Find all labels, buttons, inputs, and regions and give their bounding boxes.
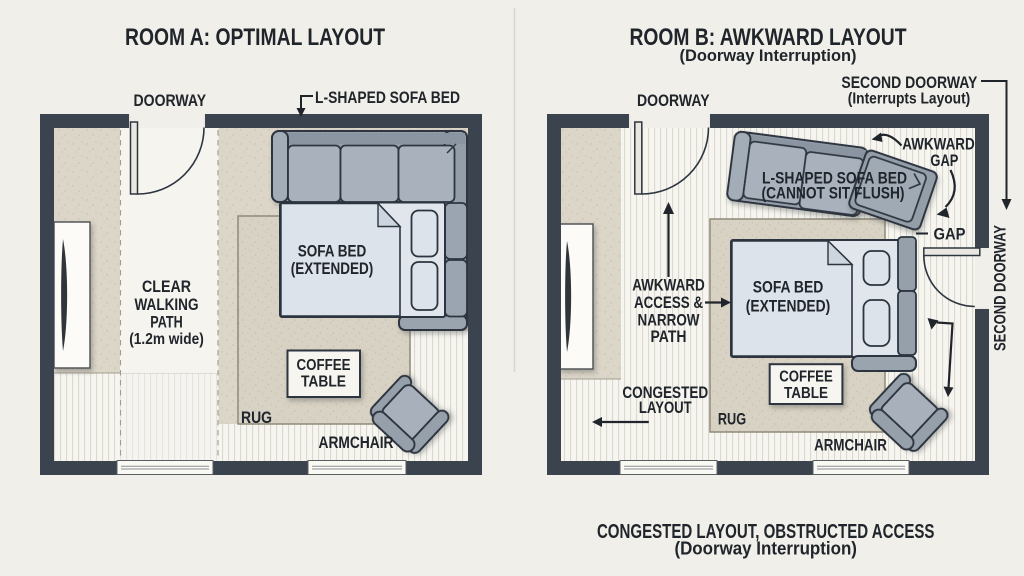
svg-text:SOFA BED: SOFA BED <box>753 279 824 297</box>
svg-text:AWKWARD: AWKWARD <box>632 276 705 295</box>
svg-text:RUG: RUG <box>718 410 746 429</box>
svg-text:(EXTENDED): (EXTENDED) <box>291 260 374 278</box>
svg-text:(Doorway Interruption): (Doorway Interruption) <box>680 46 857 65</box>
svg-text:COFFEE: COFFEE <box>779 369 833 386</box>
svg-text:SOFA BED: SOFA BED <box>298 243 367 261</box>
svg-text:PATH: PATH <box>150 313 183 332</box>
svg-text:ROOM A: OPTIMAL LAYOUT: ROOM A: OPTIMAL LAYOUT <box>125 24 385 51</box>
svg-text:ARMCHAIR: ARMCHAIR <box>319 433 394 452</box>
svg-text:L-SHAPED SOFA BED: L-SHAPED SOFA BED <box>315 88 460 107</box>
svg-text:COFFEE: COFFEE <box>297 357 351 374</box>
svg-text:SECOND DOORWAY: SECOND DOORWAY <box>991 224 1010 351</box>
svg-text:ACCESS &: ACCESS & <box>634 293 703 312</box>
svg-text:CLEAR: CLEAR <box>142 277 191 296</box>
svg-text:RUG: RUG <box>241 408 272 427</box>
svg-text:LAYOUT: LAYOUT <box>639 398 692 417</box>
svg-text:(Doorway Interruption): (Doorway Interruption) <box>674 539 857 559</box>
svg-text:GAP: GAP <box>930 151 958 170</box>
svg-text:TABLE: TABLE <box>301 374 346 391</box>
svg-text:TABLE: TABLE <box>784 385 828 402</box>
svg-text:(EXTENDED): (EXTENDED) <box>746 298 831 316</box>
svg-text:(CANNOT SIT FLUSH): (CANNOT SIT FLUSH) <box>762 184 905 203</box>
svg-text:WALKING: WALKING <box>135 295 199 314</box>
svg-text:(1.2m wide): (1.2m wide) <box>129 331 204 348</box>
svg-text:GAP: GAP <box>934 225 966 244</box>
svg-text:DOORWAY: DOORWAY <box>637 91 710 110</box>
svg-text:(Interrupts Layout): (Interrupts Layout) <box>848 91 971 108</box>
svg-text:SECOND DOORWAY: SECOND DOORWAY <box>841 73 978 92</box>
svg-text:PATH: PATH <box>651 327 687 346</box>
svg-text:DOORWAY: DOORWAY <box>134 91 207 110</box>
svg-text:ARMCHAIR: ARMCHAIR <box>814 436 887 455</box>
